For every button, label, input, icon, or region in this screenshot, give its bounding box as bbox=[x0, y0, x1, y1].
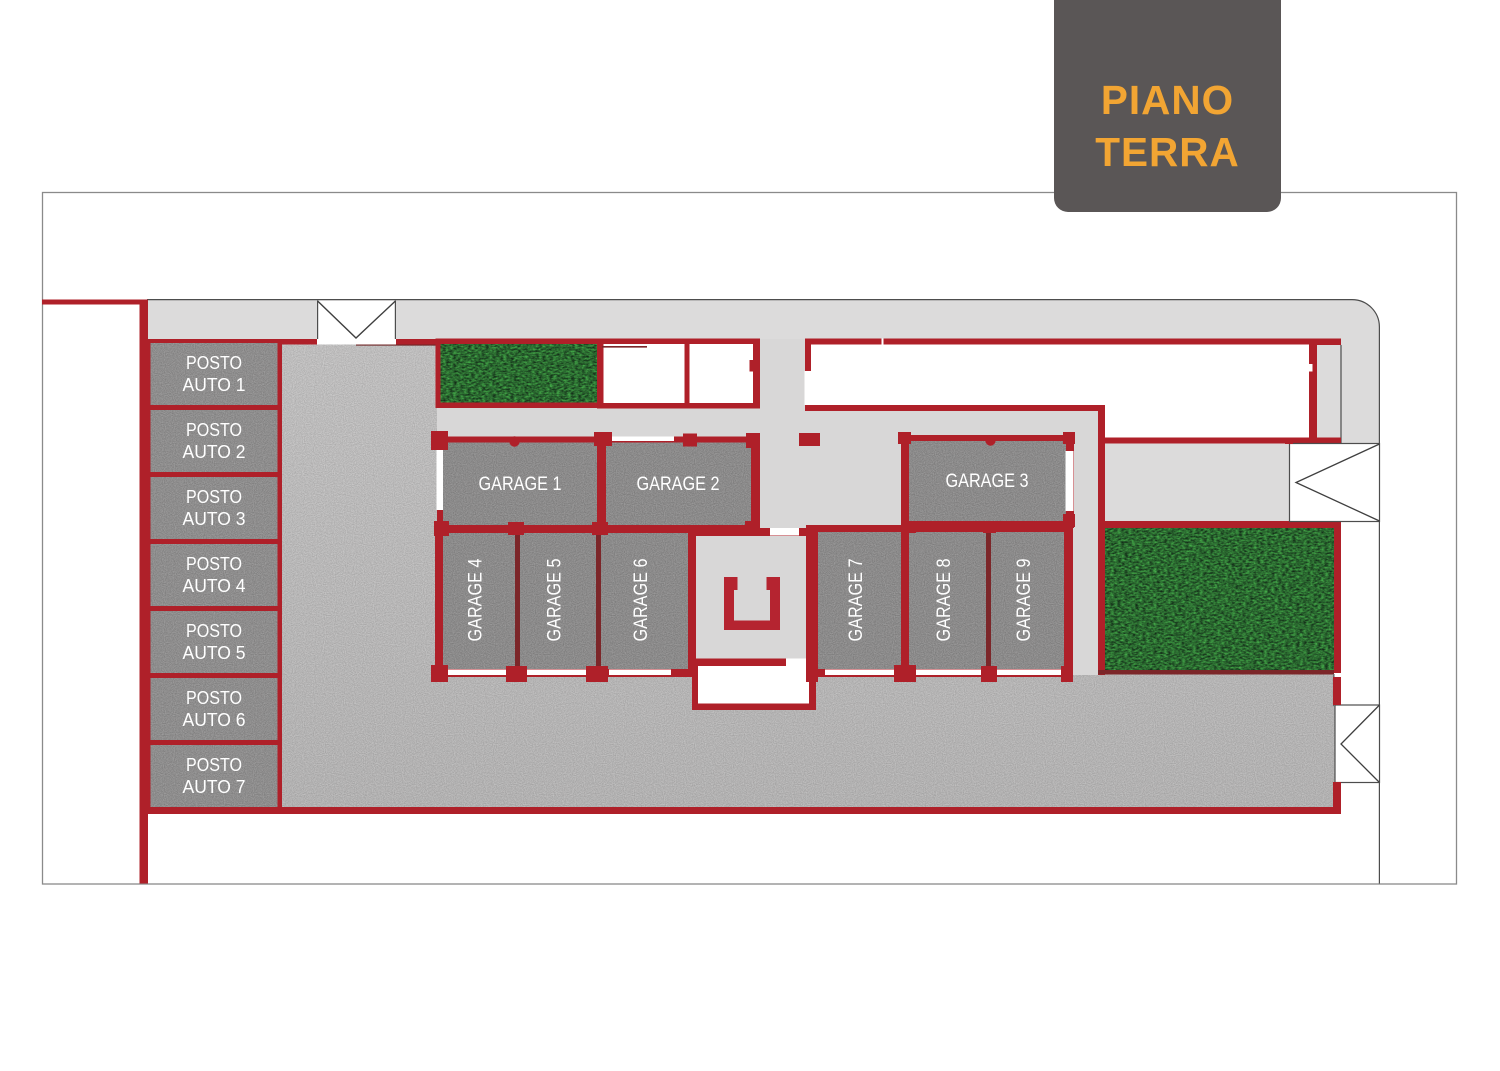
svg-text:AUTO 5: AUTO 5 bbox=[183, 642, 246, 663]
svg-text:GARAGE 2: GARAGE 2 bbox=[637, 474, 720, 495]
svg-text:GARAGE 9: GARAGE 9 bbox=[1014, 559, 1035, 642]
svg-text:POSTO: POSTO bbox=[186, 352, 242, 373]
svg-text:POSTO: POSTO bbox=[186, 486, 242, 507]
svg-text:POSTO: POSTO bbox=[186, 687, 242, 708]
svg-text:AUTO 7: AUTO 7 bbox=[183, 776, 246, 797]
svg-text:AUTO 6: AUTO 6 bbox=[183, 709, 246, 730]
svg-text:AUTO 1: AUTO 1 bbox=[183, 374, 246, 395]
svg-text:PIANO: PIANO bbox=[1101, 77, 1234, 123]
svg-text:AUTO 3: AUTO 3 bbox=[183, 508, 246, 529]
svg-text:GARAGE 3: GARAGE 3 bbox=[946, 471, 1029, 492]
svg-text:GARAGE 5: GARAGE 5 bbox=[545, 559, 566, 642]
svg-text:POSTO: POSTO bbox=[186, 620, 242, 641]
svg-text:GARAGE 6: GARAGE 6 bbox=[631, 559, 652, 642]
svg-text:TERRA: TERRA bbox=[1095, 129, 1240, 175]
svg-text:GARAGE 7: GARAGE 7 bbox=[846, 559, 867, 642]
svg-text:POSTO: POSTO bbox=[186, 553, 242, 574]
svg-text:GARAGE 8: GARAGE 8 bbox=[934, 559, 955, 642]
svg-text:GARAGE 4: GARAGE 4 bbox=[466, 558, 487, 641]
svg-text:POSTO: POSTO bbox=[186, 419, 242, 440]
svg-text:AUTO 2: AUTO 2 bbox=[183, 441, 246, 462]
svg-text:AUTO 4: AUTO 4 bbox=[183, 575, 246, 596]
svg-text:POSTO: POSTO bbox=[186, 754, 242, 775]
svg-text:GARAGE 1: GARAGE 1 bbox=[479, 474, 562, 495]
